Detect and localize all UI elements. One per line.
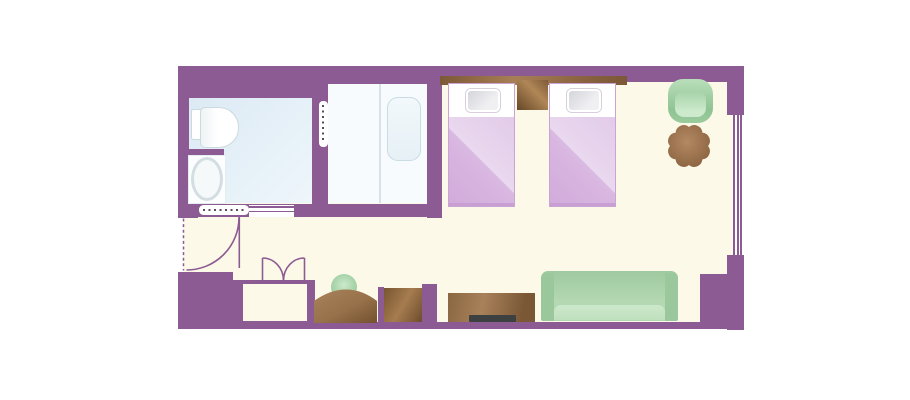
track-line — [249, 206, 294, 208]
closet-interior — [243, 284, 307, 321]
pillow — [466, 89, 500, 112]
accordion-door-marks — [203, 209, 245, 212]
shower-partition — [379, 84, 381, 203]
pillow — [567, 89, 601, 112]
sofa — [541, 271, 678, 321]
sofa-seat — [554, 305, 665, 320]
wall-bottom — [178, 322, 744, 329]
floor-plan — [0, 0, 910, 400]
wall-stub-cabinet — [422, 284, 437, 322]
accordion-door-horizontal — [199, 205, 249, 215]
tv — [469, 315, 516, 322]
sliding-door-track — [249, 205, 294, 218]
track-line — [249, 211, 294, 213]
wall-top-left — [178, 66, 328, 98]
bed-cover — [449, 117, 514, 206]
sofa-armrest-left — [541, 273, 554, 321]
washbasin — [191, 157, 223, 201]
accordion-door-vertical — [319, 101, 328, 147]
twin-bed-right — [549, 83, 616, 207]
accordion-door-marks — [322, 105, 325, 143]
armchair — [668, 79, 713, 123]
wall-tubroom-bedroom — [427, 66, 442, 218]
wall-bottom-left-block — [178, 272, 233, 329]
wall-right-upper — [727, 66, 744, 115]
wall-top-mid — [328, 66, 442, 84]
twin-bed-left — [448, 83, 515, 207]
window-glass-line — [733, 115, 735, 255]
window-glass-line — [740, 115, 742, 255]
toilet-bowl — [200, 107, 239, 148]
bathtub — [387, 97, 421, 161]
sofa-armrest-right — [665, 273, 678, 321]
entry-opening-floor — [184, 218, 190, 272]
armchair-seat — [675, 91, 706, 117]
stool — [331, 274, 357, 300]
window-glass-line — [737, 115, 739, 255]
cabinet — [384, 288, 422, 322]
bed-cover — [550, 117, 615, 206]
nightstand — [517, 80, 548, 110]
wall-right-lower — [727, 255, 744, 330]
